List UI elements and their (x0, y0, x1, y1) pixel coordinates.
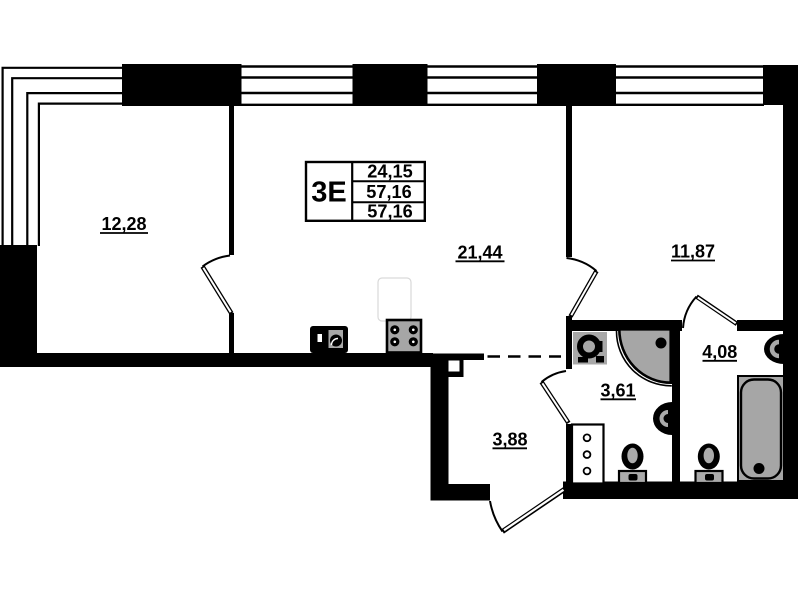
svg-text:57,16: 57,16 (367, 202, 413, 222)
svg-text:21,44: 21,44 (457, 243, 502, 263)
svg-text:3E: 3E (311, 177, 346, 209)
svg-text:24,15: 24,15 (367, 162, 413, 182)
svg-text:3,61: 3,61 (600, 381, 635, 401)
svg-text:12,28: 12,28 (101, 214, 146, 234)
svg-text:57,16: 57,16 (366, 182, 412, 202)
svg-text:11,87: 11,87 (671, 242, 715, 262)
svg-text:3,88: 3,88 (492, 430, 527, 450)
svg-text:4,08: 4,08 (702, 342, 737, 362)
